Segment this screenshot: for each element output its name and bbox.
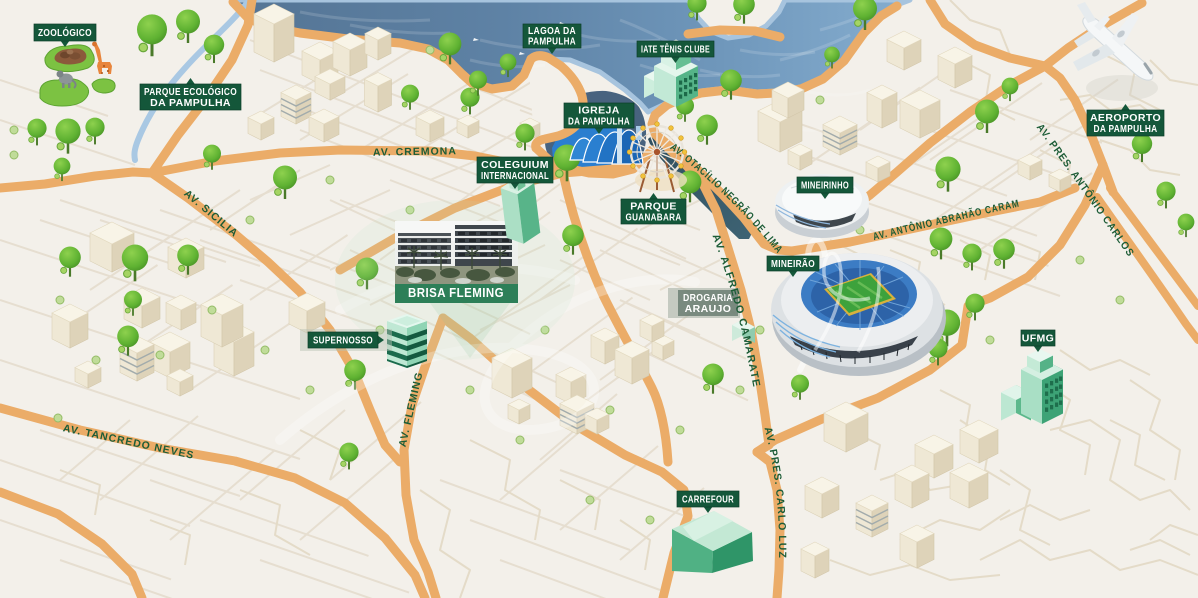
svg-text:PAMPULHA: PAMPULHA xyxy=(528,35,576,47)
svg-text:MINEIRINHO: MINEIRINHO xyxy=(801,179,849,191)
svg-text:IATE TÊNIS CLUBE: IATE TÊNIS CLUBE xyxy=(641,42,710,55)
svg-text:CARREFOUR: CARREFOUR xyxy=(682,493,734,505)
svg-text:MINEIRÃO: MINEIRÃO xyxy=(771,257,815,270)
svg-text:ZOOLÓGICO: ZOOLÓGICO xyxy=(38,26,92,39)
svg-text:SUPERNOSSO: SUPERNOSSO xyxy=(313,334,373,346)
svg-text:DA PAMPULHA: DA PAMPULHA xyxy=(568,115,630,127)
svg-text:DA PAMPULHA: DA PAMPULHA xyxy=(1094,123,1158,135)
svg-text:DA PAMPULHA: DA PAMPULHA xyxy=(150,97,231,109)
svg-text:GUANABARA: GUANABARA xyxy=(626,211,682,223)
svg-text:ARAUJO: ARAUJO xyxy=(685,303,732,315)
svg-text:BRISA FLEMING: BRISA FLEMING xyxy=(408,286,504,300)
svg-text:AV. CREMONA: AV. CREMONA xyxy=(373,145,457,158)
svg-text:UFMG: UFMG xyxy=(1022,332,1055,344)
svg-text:INTERNACIONAL: INTERNACIONAL xyxy=(481,170,549,182)
